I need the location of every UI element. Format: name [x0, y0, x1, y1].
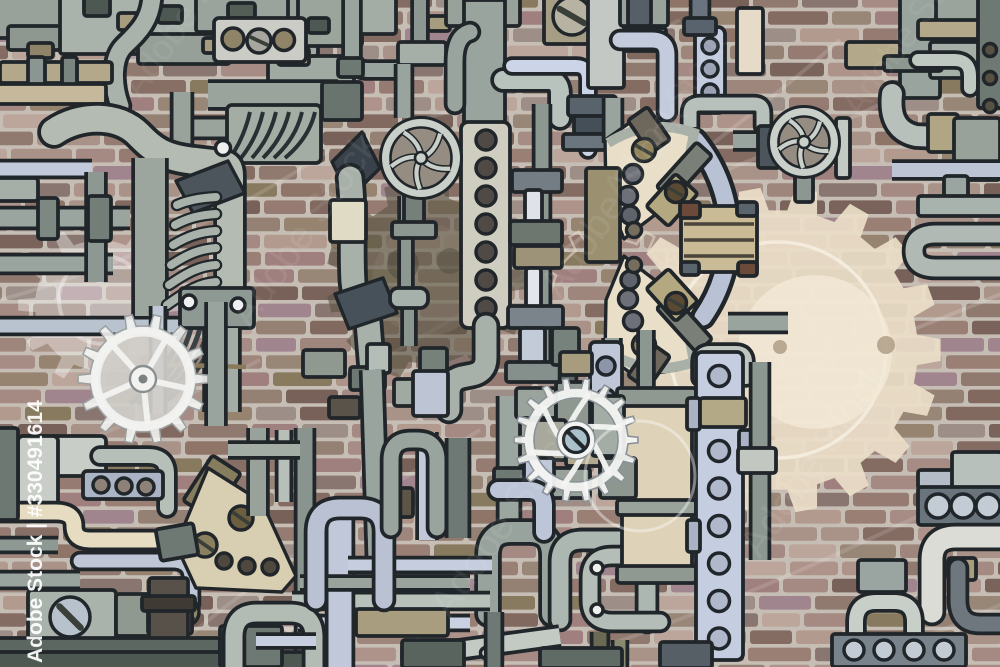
svg-text:Adobe Stock | #330491614: Adobe Stock | #330491614 [24, 400, 47, 663]
